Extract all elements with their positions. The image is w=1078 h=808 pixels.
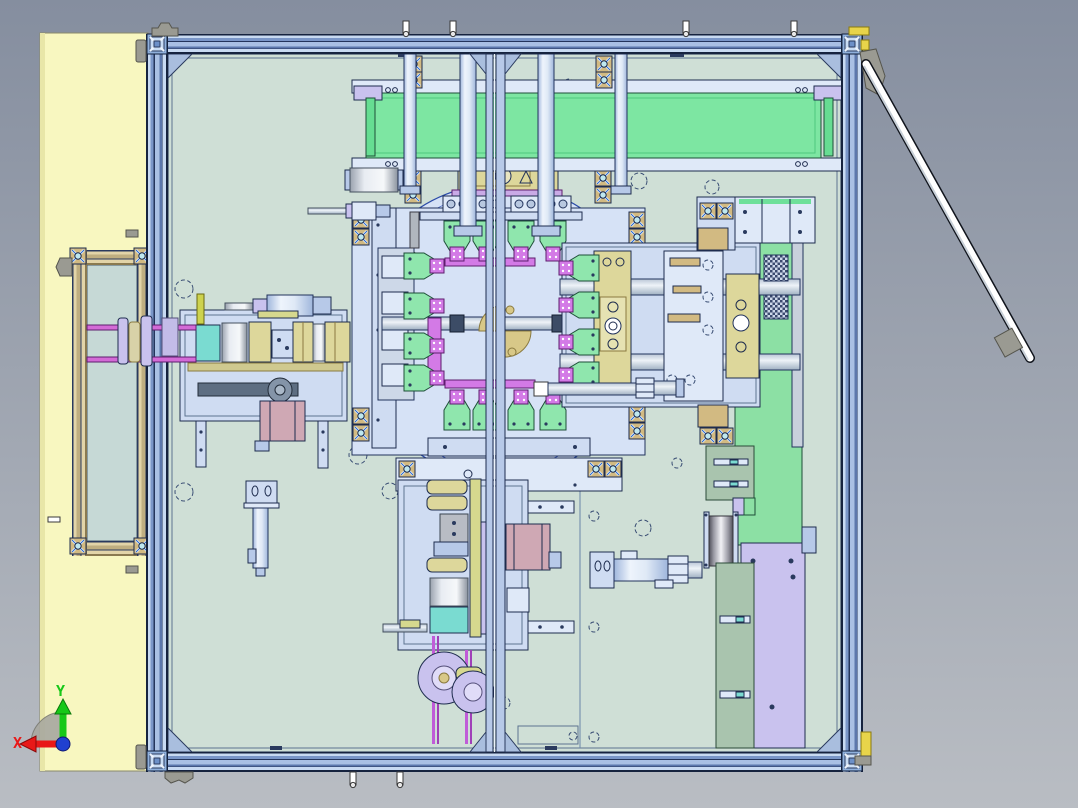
index-motor[interactable] [704, 512, 738, 568]
bearing-block-left [594, 251, 631, 383]
conveyor-motor-block[interactable] [345, 168, 403, 192]
cad-canvas[interactable]: X Y [0, 0, 1078, 808]
axis-y-label: Y [56, 682, 65, 700]
window-hinge [56, 258, 72, 276]
z-axis-origin-icon [56, 737, 70, 751]
left-feeder-assembly[interactable] [180, 294, 350, 468]
panel-clip-top [126, 230, 138, 237]
cad-viewport[interactable]: X Y [0, 0, 1078, 808]
bearing-block-right [726, 274, 759, 378]
panel-clip-bottom [126, 566, 138, 573]
top-junction-box[interactable] [697, 197, 815, 250]
side-pin [48, 517, 60, 522]
axis-x-label: X [13, 734, 22, 752]
